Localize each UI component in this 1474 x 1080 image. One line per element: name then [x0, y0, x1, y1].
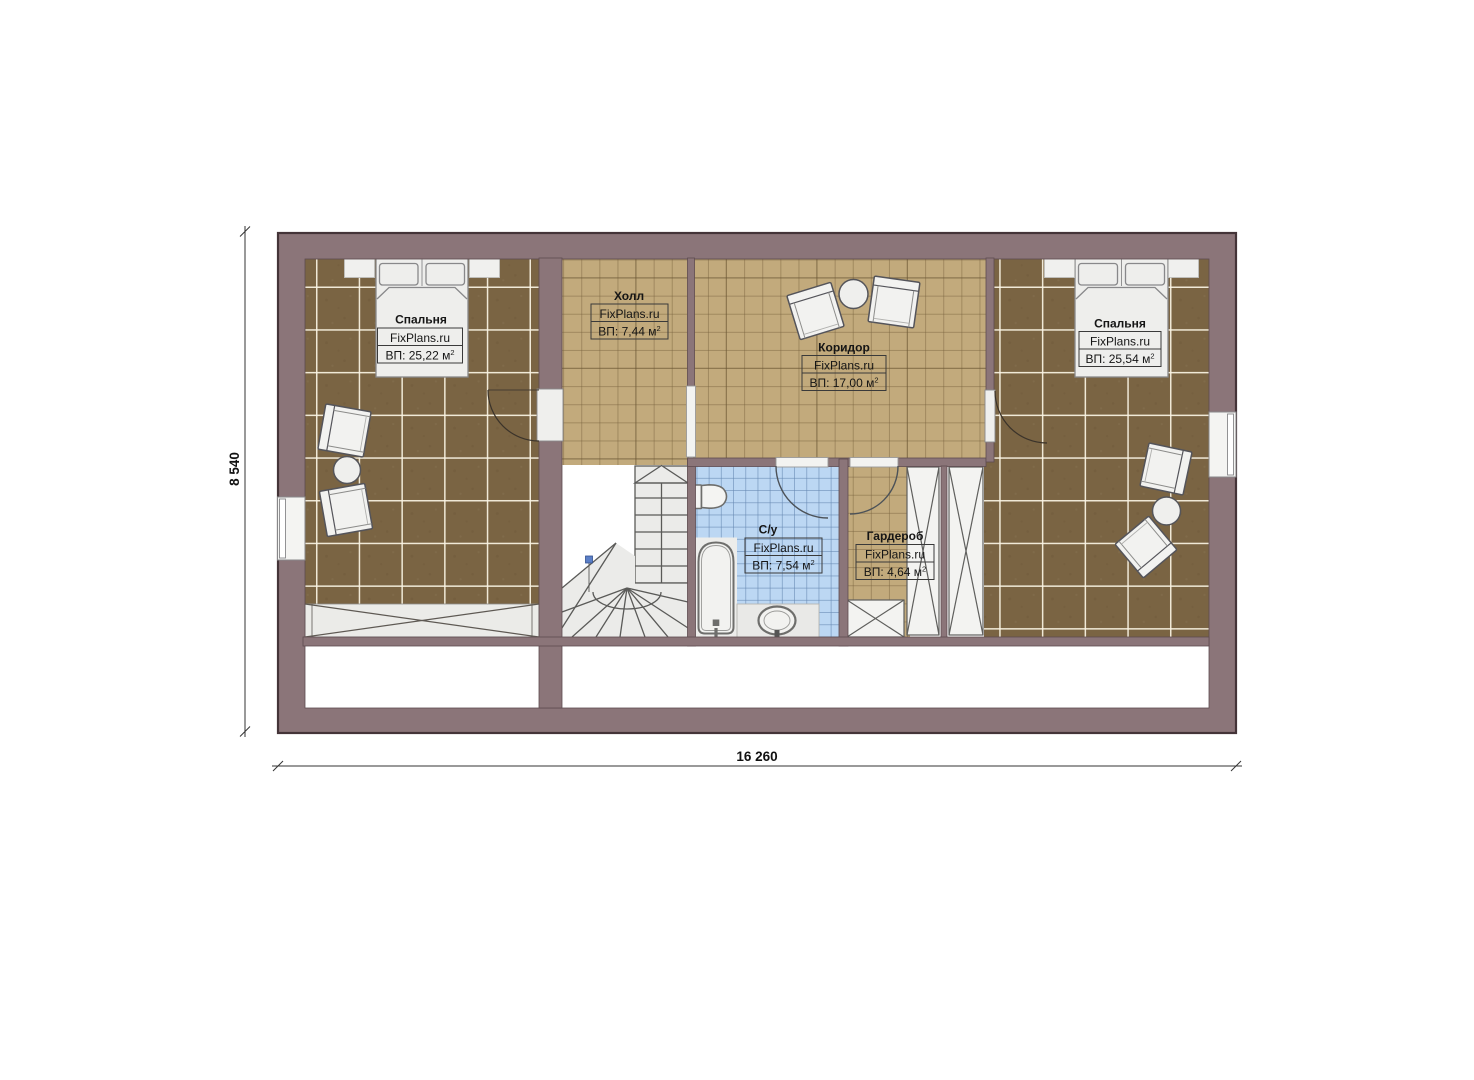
- svg-text:FixPlans.ru: FixPlans.ru: [814, 358, 874, 372]
- svg-text:ВП: 7,54 м2: ВП: 7,54 м2: [752, 558, 814, 573]
- svg-text:FixPlans.ru: FixPlans.ru: [1090, 334, 1150, 348]
- svg-text:8 540: 8 540: [227, 452, 242, 486]
- svg-text:16 260: 16 260: [736, 749, 777, 764]
- svg-text:Коридор: Коридор: [818, 341, 870, 355]
- svg-text:ВП: 25,22 м2: ВП: 25,22 м2: [385, 348, 454, 363]
- svg-text:FixPlans.ru: FixPlans.ru: [865, 547, 925, 561]
- svg-text:С/у: С/у: [759, 523, 778, 537]
- svg-text:FixPlans.ru: FixPlans.ru: [753, 541, 813, 555]
- svg-text:Спальня: Спальня: [395, 313, 447, 327]
- svg-text:ВП: 17,00 м2: ВП: 17,00 м2: [809, 376, 878, 391]
- svg-text:FixPlans.ru: FixPlans.ru: [599, 307, 659, 321]
- svg-text:ВП: 25,54 м2: ВП: 25,54 м2: [1085, 352, 1154, 367]
- svg-text:Холл: Холл: [614, 289, 644, 303]
- svg-text:ВП: 4,64 м2: ВП: 4,64 м2: [864, 565, 926, 580]
- svg-text:FixPlans.ru: FixPlans.ru: [390, 331, 450, 345]
- svg-text:Спальня: Спальня: [1094, 317, 1146, 331]
- svg-text:Гардероб: Гардероб: [867, 529, 924, 543]
- svg-text:ВП: 7,44 м2: ВП: 7,44 м2: [598, 324, 660, 339]
